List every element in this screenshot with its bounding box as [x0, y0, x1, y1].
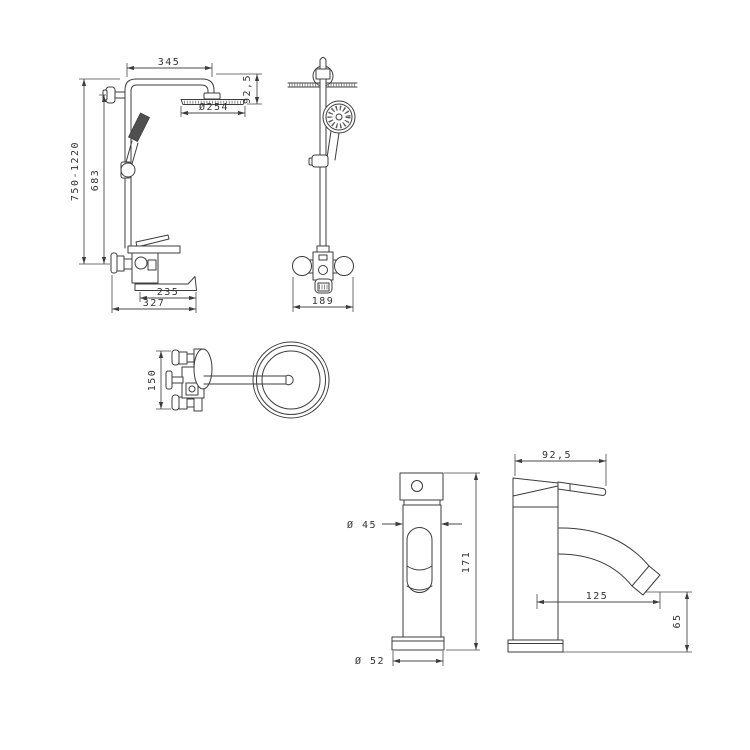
faucet-body-side: [513, 507, 558, 640]
dim-base-diameter-label: Ø 52: [355, 655, 385, 667]
dim-spout-height-label: 65: [672, 613, 683, 628]
dim-height-label: 171: [461, 551, 472, 574]
wall-union-top-1: [172, 350, 194, 365]
faucet-body-front: [403, 505, 441, 637]
dim-overall-depth: 327: [112, 298, 196, 311]
riser-pipe-front: [320, 58, 326, 249]
wall-flange-left: [293, 257, 312, 276]
dim-union-spacing-label: 150: [147, 369, 158, 392]
rail-slider-front: [312, 155, 328, 167]
dim-overall-depth-label: 327: [143, 298, 166, 309]
dim-valve-width-label: 189: [312, 296, 335, 307]
wall-bracket: [103, 87, 125, 103]
handle-top: [166, 371, 183, 389]
dim-spout-height: 65: [672, 592, 689, 652]
diverter-front: [319, 266, 328, 275]
collar: [404, 500, 440, 505]
shower-column-front-view: 189: [288, 58, 357, 313]
faucet-side-view: 92,5 125 65: [508, 450, 692, 652]
dim-spout-length-label: 235: [157, 287, 180, 298]
dim-total-height: 750-1220: [70, 79, 86, 264]
wall-flange-right: [335, 257, 354, 276]
mixer-top-plate: [128, 246, 180, 253]
wall-union-flange: [111, 253, 117, 273]
spout-side: [558, 528, 660, 595]
wall-mixer-front: [293, 246, 354, 293]
dim-union-spacing: 150: [147, 351, 163, 409]
shower-column-side-view: 345 92,5 Ø254 750-1220 683 235 327: [70, 57, 262, 313]
wall-mixer-side: [111, 235, 197, 291]
valve-cap: [135, 257, 147, 269]
dim-rail-height: 683: [90, 95, 106, 264]
diverter-knob: [148, 260, 156, 270]
hand-shower-head: [129, 113, 150, 142]
dim-total-height-label: 750-1220: [70, 141, 81, 201]
slider-knob: [121, 163, 135, 177]
dim-rail-height-label: 683: [90, 169, 101, 192]
dim-handle-reach: 92,5: [515, 450, 606, 463]
dim-head-offset-label: 92,5: [242, 74, 253, 104]
valve-dome-top: [194, 349, 212, 389]
faucet-base-front: [392, 637, 444, 650]
dim-arm-length: 345: [127, 57, 212, 70]
spout-top: [204, 375, 293, 384]
handle-block-front: [400, 473, 443, 500]
hand-shower-front: [309, 101, 355, 167]
dim-arm-length-label: 345: [158, 57, 181, 68]
bracket-detail: [316, 69, 330, 79]
head-outline-top: [253, 342, 329, 418]
dim-handle-reach-label: 92,5: [542, 450, 572, 461]
handle-lever: [558, 482, 606, 496]
handle-side: [513, 478, 606, 507]
dim-head-diameter-label: Ø254: [199, 101, 229, 113]
dim-valve-width: 189: [293, 296, 353, 309]
head-connector-nut: [204, 93, 220, 99]
technical-drawing-sheet: 345 92,5 Ø254 750-1220 683 235 327: [0, 0, 750, 750]
faucet-front-view: Ø 45 171 Ø 52: [347, 473, 480, 667]
mixer-lever-side: [136, 235, 169, 247]
faucet-base-side: [508, 640, 563, 652]
mixer-top-view: 150: [147, 342, 329, 418]
dim-height: 171: [461, 473, 478, 650]
drawing-canvas: 345 92,5 Ø254 750-1220 683 235 327: [0, 0, 750, 750]
dim-head-offset: 92,5: [242, 74, 259, 104]
dim-body-diameter-label: Ø 45: [347, 519, 377, 531]
dim-base-diameter: Ø 52: [355, 655, 443, 667]
dim-spout-reach-label: 125: [586, 591, 609, 602]
